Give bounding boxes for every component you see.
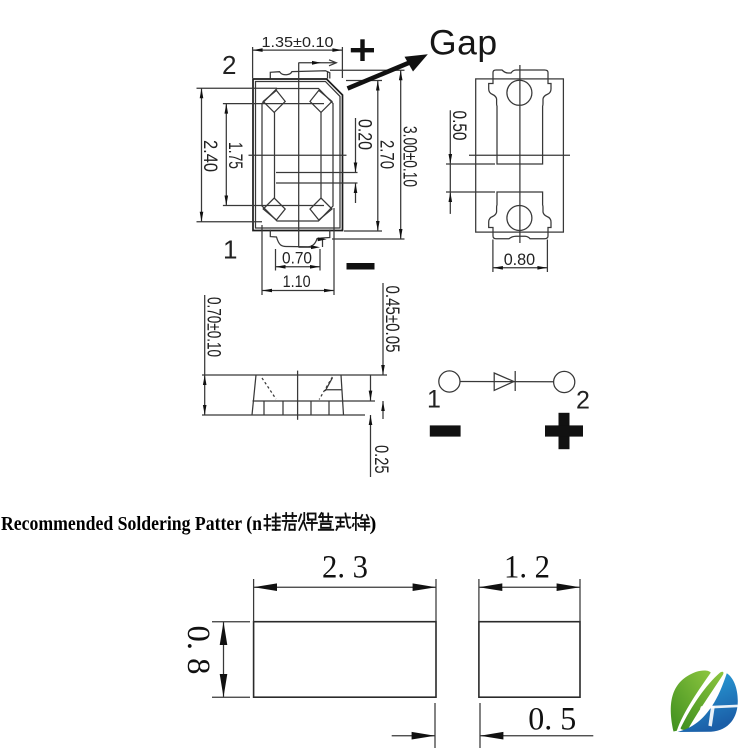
svg-text:2.40: 2.40 [199, 140, 220, 172]
svg-text:3.00±0.10: 3.00±0.10 [399, 126, 420, 187]
svg-text:Gap: Gap [429, 23, 498, 63]
svg-text:2: 2 [222, 50, 236, 80]
svg-text:Recommended Soldering Patter (: Recommended Soldering Patter (n [1, 513, 263, 535]
svg-text:0. 5: 0. 5 [528, 702, 576, 738]
svg-text:2.70: 2.70 [376, 140, 397, 169]
svg-text:1: 1 [427, 386, 441, 414]
svg-text:0.70: 0.70 [282, 249, 312, 268]
svg-text:): ) [370, 513, 377, 535]
svg-text:1. 2: 1. 2 [504, 550, 550, 586]
svg-text:1.10: 1.10 [283, 272, 311, 291]
svg-text:0.70±0.10: 0.70±0.10 [203, 297, 224, 357]
svg-text:0. 8: 0. 8 [180, 626, 216, 675]
svg-text:0.25: 0.25 [370, 445, 391, 474]
svg-text:1.75: 1.75 [224, 142, 245, 169]
svg-text:2. 3: 2. 3 [322, 550, 368, 586]
svg-text:0.50: 0.50 [448, 111, 469, 141]
svg-text:1: 1 [223, 235, 237, 265]
svg-text:0.20: 0.20 [353, 119, 374, 150]
svg-text:1.35±0.10: 1.35±0.10 [262, 34, 334, 51]
svg-text:0.80: 0.80 [504, 250, 536, 269]
svg-text:2: 2 [576, 387, 590, 415]
svg-text:0.45±0.05: 0.45±0.05 [381, 286, 402, 353]
